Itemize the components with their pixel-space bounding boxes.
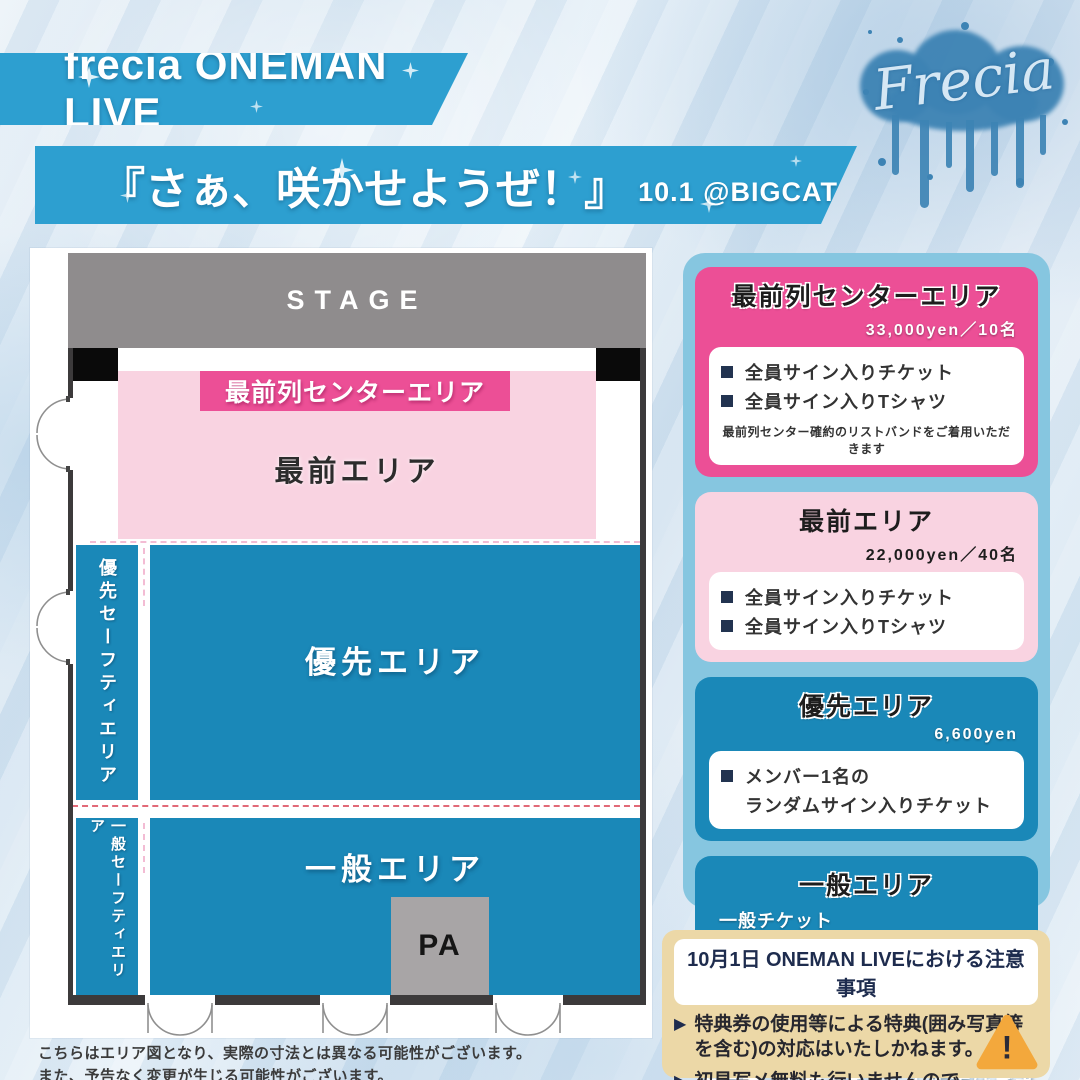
wall [563,995,646,1005]
logo-drip [892,115,899,175]
logo-drip [1040,115,1046,155]
bullet-square-icon [721,366,733,378]
arrow-icon: ▶ [674,1014,686,1062]
stage-wing-block-right [596,348,646,381]
event-title-banner: frecia ONEMAN LIVE [0,53,468,125]
warning-icon: ! [976,1014,1038,1070]
door-icon [34,589,72,665]
logo-drip [920,120,929,208]
card-title: 一般エリア [709,866,1024,902]
wall [68,348,73,398]
wall [215,995,320,1005]
card-price: 6,600yen [709,726,1018,744]
card-note: 最前列センター確約のリストバンドをご着用いただきます [721,423,1012,457]
stage-wing-block-left [68,348,118,381]
show-title-banner: 『さぁ、咲かせようぜ！』 10.1 @BIGCAT [35,146,857,224]
bullet-square-icon [721,770,733,782]
arrow-icon: ▶ [674,1071,686,1080]
benefit-item: 全員サイン入りTシャツ [721,388,1012,414]
wall [640,348,646,1005]
flyer-root: frecia ONEMAN LIVE 『さぁ、咲かせようぜ！』 10.1 @BI… [0,0,1080,1080]
benefit-item: メンバー1名の [721,763,1012,789]
date-venue: 10.1 @BIGCAT [638,177,838,208]
card-title: 最前列センターエリア [709,277,1024,313]
logo-drip [1016,118,1024,188]
pricing-panel: 最前列センターエリア 33,000yen／10名 全員サイン入りチケット 全員サ… [683,253,1050,908]
show-title: 『さぁ、咲かせようぜ！』 [101,153,628,217]
stage-area: STAGE [68,253,646,348]
venue-map: STAGE 最前エリア 最前列センターエリア 優先セーフティエリア 優先エリア … [30,248,652,1038]
front-area-label: 最前エリア [274,448,439,490]
card-title: 優先エリア [709,687,1024,723]
wall [68,664,73,1005]
frecia-logo: Frecia [858,20,1068,190]
card-benefits-box: メンバー1名の ランダムサイン入りチケット [709,751,1024,829]
door-icon [34,396,72,472]
priority-area: 優先エリア [150,545,640,800]
card-price: 33,000yen／10名 [709,316,1018,340]
disclaimer: こちらはエリア図となり、実際の寸法とは異なる可能性がございます。 また、予告なく… [38,1042,531,1080]
disclaimer-line: こちらはエリア図となり、実際の寸法とは異なる可能性がございます。 [38,1042,531,1065]
priority-safety-area: 優先セーフティエリア [76,545,138,800]
benefit-item-line2: ランダムサイン入りチケット [721,792,1012,818]
wall [68,470,73,591]
wall [68,995,145,1005]
tick-line [90,541,640,543]
door-icon [320,1003,390,1037]
pricing-card-front-center: 最前列センターエリア 33,000yen／10名 全員サイン入りチケット 全員サ… [695,267,1038,477]
stage-label: STAGE [286,285,427,316]
benefit-item: 全員サイン入りチケット [721,359,1012,385]
divider-dashed-line [72,805,640,807]
notice-item: ▶ 初見写メ無料も行いませんので ご了承ください。 [674,1069,1038,1080]
bullet-square-icon [721,620,733,632]
bullet-square-icon [721,591,733,603]
logo-drip [966,120,974,192]
door-icon [493,1003,563,1037]
logo-drip [946,122,952,168]
pa-label: PA [418,929,461,963]
pricing-card-priority: 優先エリア 6,600yen メンバー1名の ランダムサイン入りチケット [695,677,1038,841]
front-center-area-banner: 最前列センターエリア [200,371,510,411]
disclaimer-line: また、予告なく変更が生じる可能性がございます。 [38,1065,531,1080]
pa-booth: PA [391,897,489,995]
logo-drip [991,122,998,176]
wall [390,995,493,1005]
notice-header: 10月1日 ONEMAN LIVEにおける注意事項 [674,939,1038,1005]
notice-box: 10月1日 ONEMAN LIVEにおける注意事項 ▶ 特典券の使用等による特典… [662,930,1050,1078]
logo-splatter-dots [868,30,872,34]
tick-line [143,823,145,873]
general-safety-area: 一般セーフティエリア [76,818,138,995]
card-price: 22,000yen／40名 [709,541,1018,565]
card-benefits-box: 全員サイン入りチケット 全員サイン入りTシャツ [709,572,1024,650]
card-benefits-box: 全員サイン入りチケット 全員サイン入りTシャツ 最前列センター確約のリストバンド… [709,347,1024,465]
bullet-square-icon [721,395,733,407]
benefit-item: 全員サイン入りTシャツ [721,613,1012,639]
event-title: frecia ONEMAN LIVE [64,41,468,137]
benefit-item: 全員サイン入りチケット [721,584,1012,610]
tick-line [143,548,145,606]
priority-area-label: 優先エリア [305,637,485,682]
pricing-card-front: 最前エリア 22,000yen／40名 全員サイン入りチケット 全員サイン入りT… [695,492,1038,662]
svg-text:!: ! [1002,1030,1013,1066]
door-icon [145,1003,215,1037]
card-title: 最前エリア [709,502,1024,538]
